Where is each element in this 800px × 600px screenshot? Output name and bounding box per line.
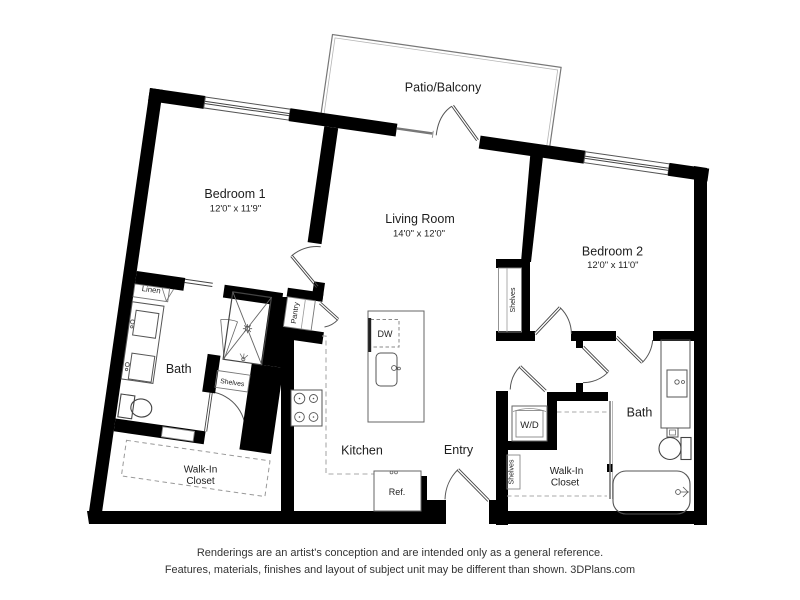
svg-text:Renderings are an artist's con: Renderings are an artist's conception an…	[197, 547, 603, 559]
svg-text:Ref.: Ref.	[389, 487, 406, 497]
svg-text:14'0" x 12'0": 14'0" x 12'0"	[393, 229, 445, 240]
svg-text:Patio/Balcony: Patio/Balcony	[405, 81, 482, 95]
svg-text:Bath: Bath	[166, 362, 192, 376]
svg-text:Living Room: Living Room	[385, 212, 454, 226]
svg-text:DW: DW	[378, 329, 393, 339]
svg-text:Shelves: Shelves	[509, 459, 516, 484]
svg-text:Bedroom 1: Bedroom 1	[204, 187, 265, 201]
svg-text:Bath: Bath	[627, 406, 653, 420]
svg-text:Kitchen: Kitchen	[341, 444, 383, 458]
svg-text:Closet: Closet	[551, 478, 580, 489]
svg-text:Closet: Closet	[186, 476, 215, 487]
svg-text:Entry: Entry	[444, 443, 474, 457]
svg-text:Walk-In: Walk-In	[184, 465, 218, 476]
svg-text:Features, materials, finishes: Features, materials, finishes and layout…	[165, 564, 635, 576]
svg-text:12'0" x 11'0": 12'0" x 11'0"	[587, 260, 638, 271]
svg-text:W/D: W/D	[520, 420, 539, 431]
svg-text:12'0" x 11'9": 12'0" x 11'9"	[210, 204, 261, 215]
svg-text:Walk-In: Walk-In	[550, 466, 584, 477]
svg-text:Bedroom 2: Bedroom 2	[582, 245, 643, 259]
svg-text:Shelves: Shelves	[510, 287, 517, 312]
